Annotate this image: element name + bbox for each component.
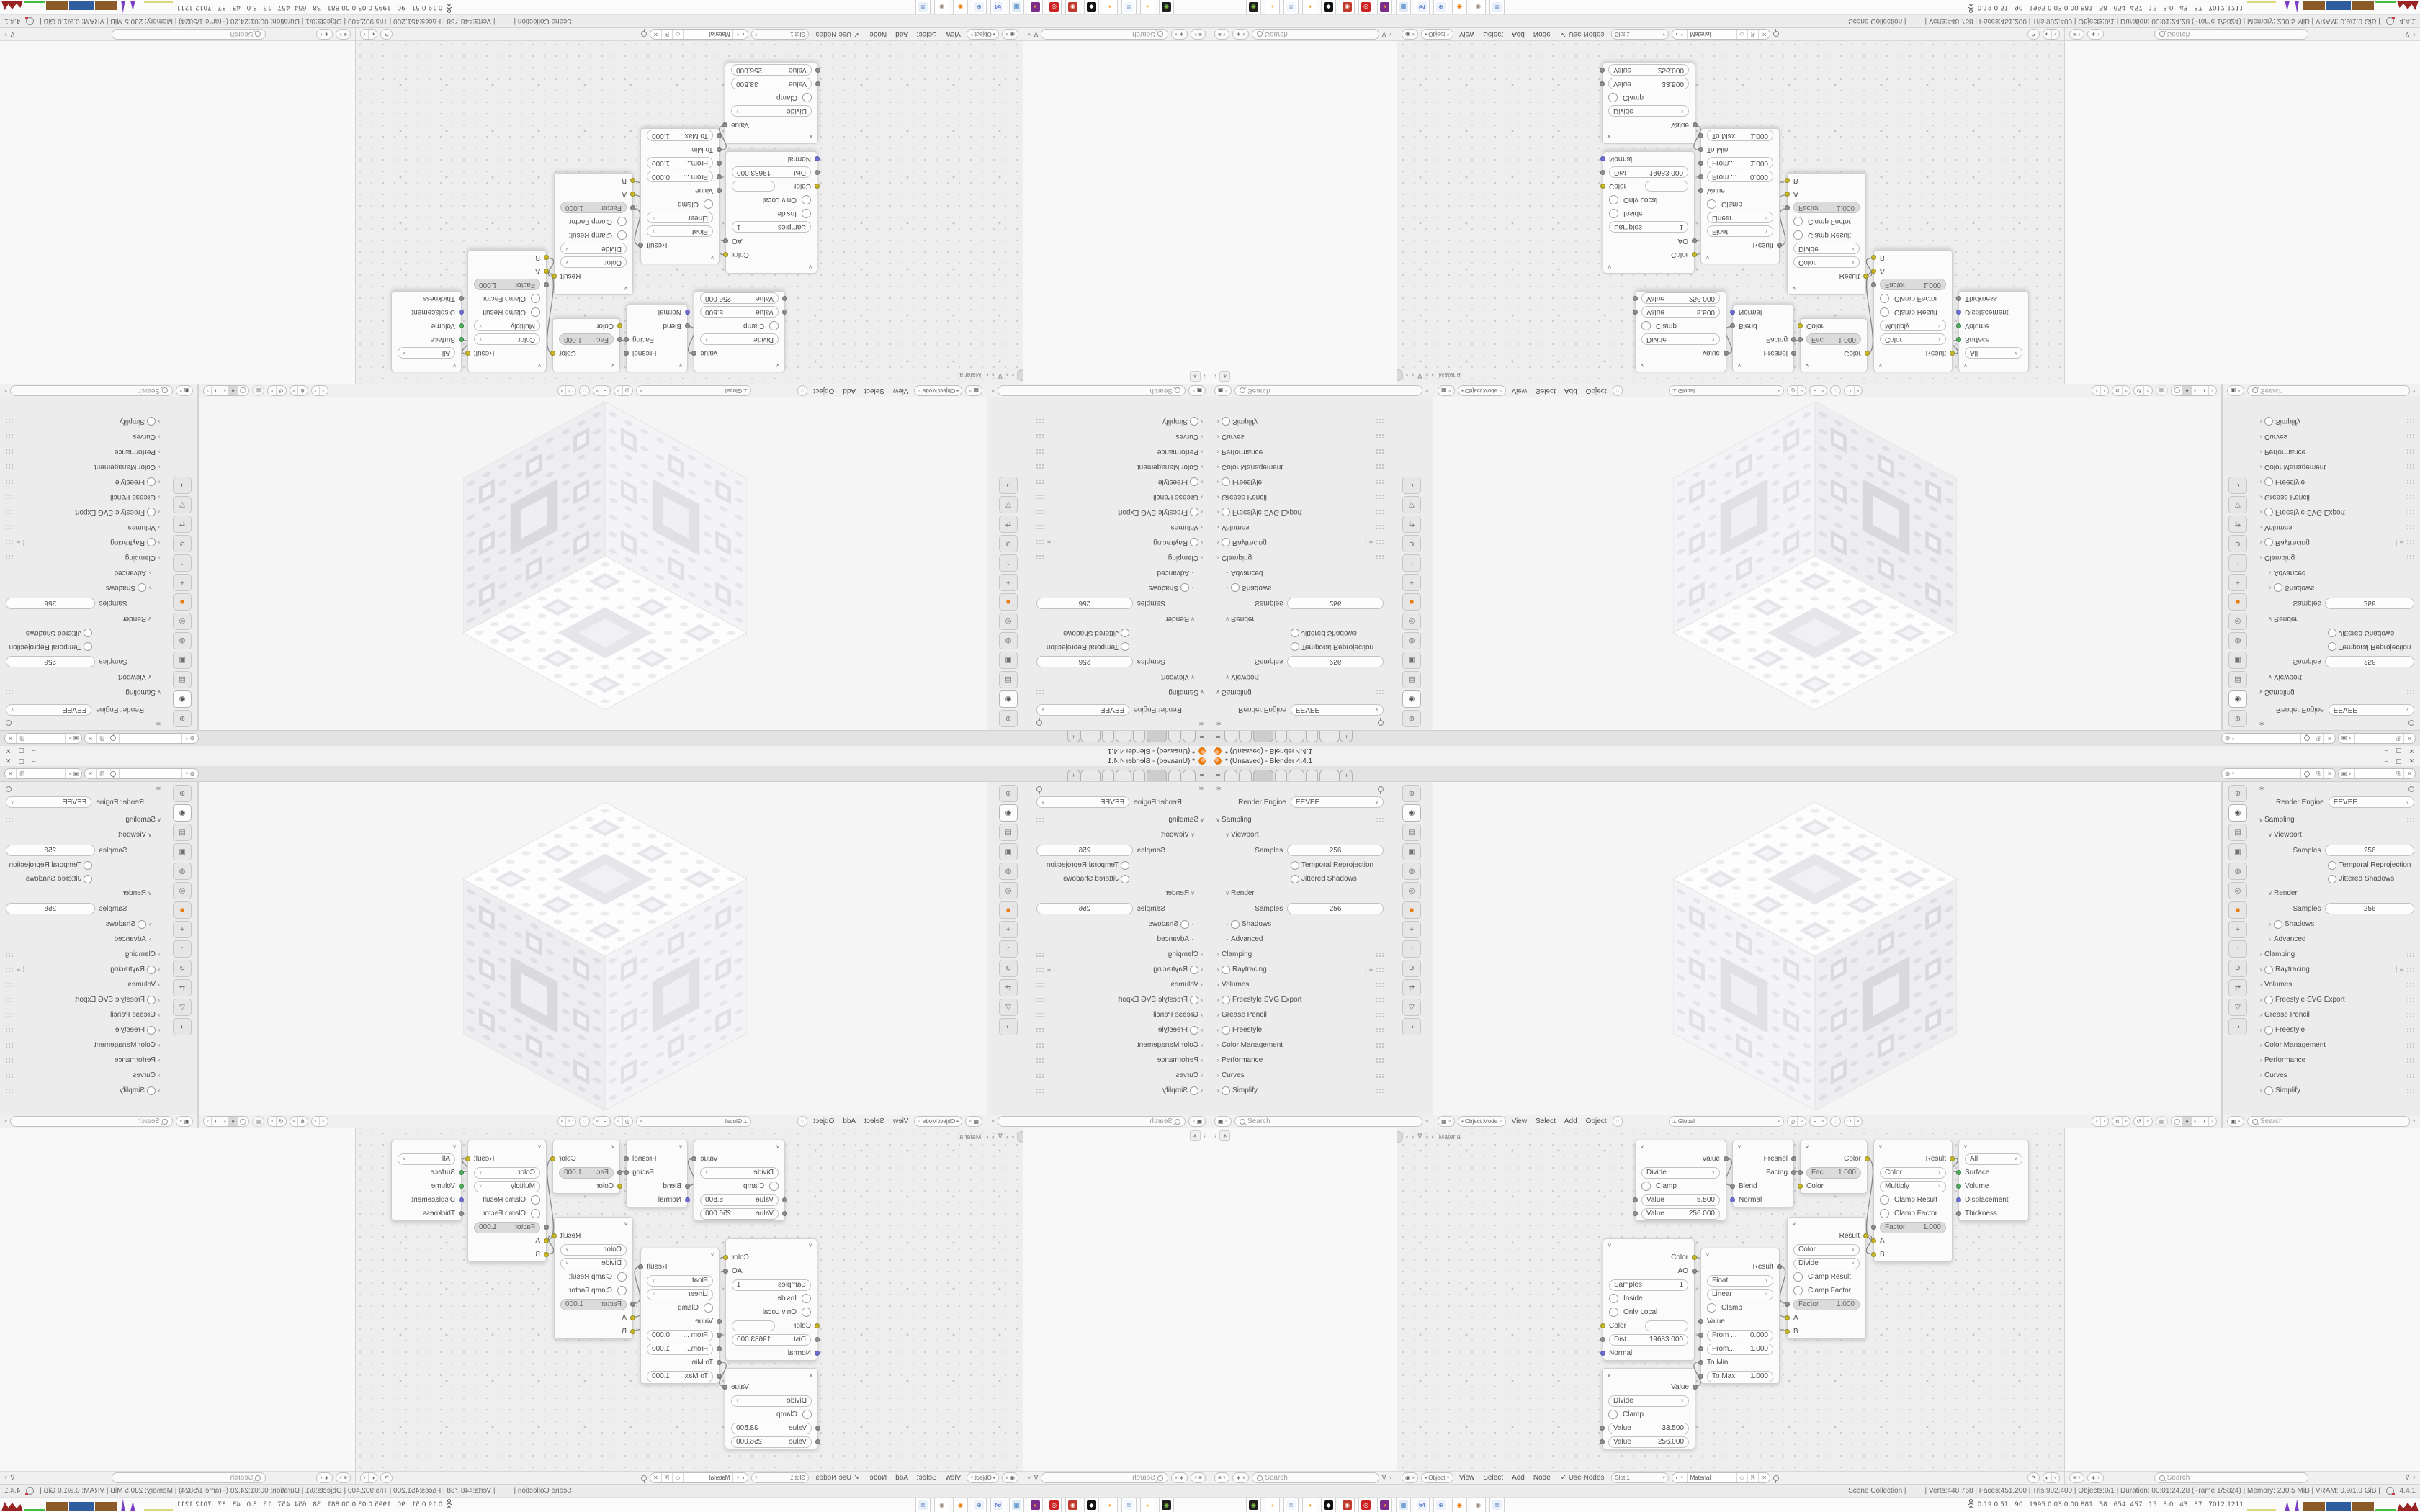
node-header[interactable]: ∨	[627, 360, 687, 372]
pivot-point-dropdown[interactable]: ◎∨	[614, 1116, 632, 1127]
section-shadows[interactable]: ›Shadows	[0, 917, 167, 932]
use-nodes-checkbox[interactable]: ✓ Use Nodes	[1561, 1474, 1605, 1482]
node-row-clamp-factor[interactable]: Clamp Factor	[1874, 292, 1952, 305]
workspace-tab-5[interactable]	[1289, 770, 1304, 781]
modifiers-tab-icon[interactable]: +	[999, 921, 1018, 938]
section-viewport[interactable]: ∨Viewport	[0, 670, 167, 685]
checkbox-jittered-shadows[interactable]: Jittered Shadows	[1210, 626, 1389, 640]
view-layer-tab-icon[interactable]: ▣	[999, 843, 1018, 860]
particles-tab-icon[interactable]: ∴	[999, 554, 1018, 572]
properties-editor-type-button[interactable]: ▣∨	[1214, 1116, 1232, 1127]
node-row-ao[interactable]: AO	[726, 234, 817, 248]
tools-wrench-icon[interactable]: ⊕	[1433, 1498, 1448, 1512]
node-row-fresnel[interactable]: Fresnel	[627, 346, 687, 360]
node-row-factor[interactable]: Factor1.000	[1874, 278, 1952, 292]
filter-funnel-icon[interactable]: ∇	[2406, 1474, 2410, 1482]
node-dropdown[interactable]: Divide∨	[1608, 1395, 1689, 1407]
value-socket-icon[interactable]	[782, 310, 787, 315]
node-row-color[interactable]: Color	[1801, 319, 1867, 333]
render-tab-icon[interactable]: ◉	[173, 804, 192, 822]
section-checkbox[interactable]	[1222, 508, 1230, 517]
viewport-editor-type-button[interactable]: ▦∨	[1438, 385, 1455, 396]
node-dropdown[interactable]: Multiply∨	[1880, 1181, 1946, 1192]
node-header[interactable]: ∨	[1874, 360, 1952, 372]
node-value-field[interactable]: Factor1.000	[474, 1222, 540, 1233]
node-header[interactable]: ∨	[1636, 1140, 1726, 1152]
value-socket-icon[interactable]	[717, 161, 722, 166]
node-value-field[interactable]: Factor1.000	[474, 279, 540, 291]
node-row-only-local[interactable]: Only Local	[1603, 1305, 1694, 1319]
shader-menu-select[interactable]: Select	[1480, 1474, 1506, 1482]
snap-controls[interactable]: ∪∨	[1809, 385, 1827, 396]
render-engine-dropdown[interactable]: EEVEE∨	[1036, 796, 1129, 808]
delete-view-layer-button[interactable]: ✕	[5, 769, 16, 778]
outliner-search-input[interactable]: Search	[1252, 29, 1379, 40]
outliner-filter-mode-dropdown[interactable]: ∗∨	[2087, 1472, 2104, 1483]
node-row-displacement[interactable]: Displacement	[1959, 305, 2028, 319]
node-row-value[interactable]: Value	[1701, 184, 1779, 197]
mode-dropdown[interactable]: ▪ Object Mode∨	[1458, 1116, 1506, 1127]
section-advanced[interactable]: ›Advanced	[0, 565, 167, 580]
pin-scene-icon[interactable]	[107, 769, 119, 778]
node-row-clamp[interactable]: Clamp	[1701, 1301, 1779, 1315]
section-caret-icon[interactable]: ›	[2267, 936, 2274, 942]
value-socket-icon[interactable]	[782, 296, 787, 301]
node-row-surface[interactable]: Surface	[392, 333, 461, 346]
pin-material-icon[interactable]	[1773, 32, 1779, 37]
section-freestyle-svg-export[interactable]: ›Freestyle SVG Export	[2253, 992, 2420, 1007]
node-row-divide[interactable]: Divide∨	[694, 333, 784, 346]
value-socket-icon[interactable]	[1785, 205, 1790, 210]
property-value-field[interactable]: 256	[6, 903, 95, 914]
node-value-field[interactable]: To Max1.000	[647, 1371, 713, 1382]
node-header[interactable]: ∨	[694, 1140, 784, 1152]
transform-orientation-dropdown[interactable]: ⟂ Global∨	[1669, 1116, 1784, 1127]
tool-tab-icon[interactable]: ⊕	[173, 710, 192, 727]
value-socket-icon[interactable]	[624, 1170, 629, 1175]
section-caret-icon[interactable]: ›	[2267, 570, 2274, 576]
workspace-tab-2[interactable]	[1239, 731, 1252, 742]
section-freestyle-svg-export[interactable]: ›Freestyle SVG Export	[1210, 992, 1389, 1007]
node-row-divide[interactable]: Divide∨	[725, 104, 817, 118]
node-header[interactable]: ∨	[725, 132, 817, 143]
node-value-field[interactable]: From...1.000	[647, 1344, 713, 1355]
node-row-clamp[interactable]: Clamp	[694, 319, 784, 333]
snap-node-button[interactable]: ↷	[380, 29, 393, 40]
node-row-thickness[interactable]: Thickness	[392, 1207, 461, 1220]
properties-options-chevron[interactable]: ∨	[4, 388, 7, 393]
section-clamping[interactable]: ›Clamping	[1031, 550, 1210, 565]
workspace-tab-3[interactable]	[1253, 731, 1273, 742]
value-socket-icon[interactable]	[638, 1264, 643, 1269]
viewport-menu-add[interactable]: Add	[840, 1117, 859, 1125]
view-layer-selector[interactable]: ▣∨ ⎘ ✕	[4, 768, 82, 779]
node-mix-node[interactable]: ∨ColorFac1.000Color	[1800, 1140, 1868, 1194]
node-header[interactable]: ∨	[1701, 1248, 1779, 1260]
col-socket-icon[interactable]	[1950, 351, 1955, 356]
section-clamping[interactable]: ›Clamping	[2253, 947, 2420, 962]
overlays-dropdown[interactable]: ↺∨	[2133, 385, 2152, 396]
node-math-divide-1[interactable]: ∨ValueDivide∨ClampValue5.500Value256.000	[1635, 1140, 1726, 1221]
node-dropdown[interactable]: Linear∨	[1707, 212, 1773, 224]
particles-tab-icon[interactable]: ∴	[173, 940, 192, 958]
property-value-field[interactable]: 256	[2325, 598, 2414, 609]
section-checkbox[interactable]	[1190, 418, 1198, 426]
viewport-menu-view[interactable]: View	[890, 1117, 912, 1125]
section-checkbox[interactable]	[1190, 996, 1198, 1004]
node-row-normal[interactable]: Normal	[627, 1193, 687, 1207]
section-caret-icon[interactable]: ∨	[2267, 674, 2274, 680]
checkbox-jittered-shadows[interactable]: Jittered Shadows	[0, 872, 167, 886]
value-socket-icon[interactable]	[1791, 337, 1796, 342]
viewport-editor-type-button[interactable]: ▦∨	[965, 385, 982, 396]
section-volumes[interactable]: ›Volumes	[2253, 520, 2420, 535]
section-caret-icon[interactable]: ›	[146, 585, 153, 591]
delete-scene-button[interactable]: ✕	[85, 734, 96, 743]
node-row-clamp-factor[interactable]: Clamp Factor	[468, 1207, 546, 1220]
section-caret-icon[interactable]: ›	[1214, 524, 1222, 531]
node-row-dist-[interactable]: Dist...19683.000	[1603, 1333, 1694, 1346]
node-checkbox[interactable]	[531, 307, 540, 317]
constraints-tab-icon[interactable]: ⇄	[2228, 516, 2247, 533]
section-viewport[interactable]: ∨Viewport	[2253, 827, 2420, 842]
snap-node-dropdown[interactable]: ◐∨	[2043, 1472, 2060, 1483]
gimp-icon[interactable]: ◉	[1471, 0, 1486, 15]
node-row-value[interactable]: Value	[1636, 1152, 1726, 1166]
vec-socket-icon[interactable]	[815, 156, 820, 161]
section-caret-icon[interactable]: ∨	[1224, 674, 1231, 680]
section-grease-pencil[interactable]: ›Grease Pencil	[1210, 490, 1389, 505]
node-row-float[interactable]: Float∨	[641, 225, 719, 238]
section-advanced[interactable]: ›Advanced	[1031, 932, 1210, 947]
node-value-field[interactable]: Value33.500	[731, 78, 812, 90]
property-value-field[interactable]: 256	[1036, 845, 1133, 856]
col-socket-icon[interactable]	[1785, 1329, 1790, 1334]
snap-node-dropdown[interactable]: ◐∨	[360, 29, 377, 40]
outliner-item[interactable]: › ∗	[1210, 1128, 1397, 1141]
pin-scene-icon[interactable]	[2301, 734, 2313, 743]
node-row-all[interactable]: All∨	[392, 1152, 461, 1166]
documents-icon[interactable]: ≣	[1489, 1498, 1505, 1512]
section-caret-icon[interactable]: ›	[1214, 494, 1222, 500]
value-socket-icon[interactable]	[1698, 1374, 1703, 1379]
value-socket-icon[interactable]	[1600, 1426, 1605, 1431]
purple-app-icon[interactable]: ◕	[1028, 0, 1043, 15]
filter-funnel-icon[interactable]: ∇	[1382, 30, 1386, 38]
expand-caret-icon[interactable]: ›	[1214, 372, 1216, 380]
section-curves[interactable]: ›Curves	[2253, 429, 2420, 444]
node-row-normal[interactable]: Normal	[627, 305, 687, 319]
node-row-clamp[interactable]: Clamp	[1701, 197, 1779, 211]
node-value-field[interactable]: From ...0.000	[1707, 1330, 1773, 1341]
object-data-tab-icon[interactable]: ▽	[2228, 496, 2247, 513]
node-row-color[interactable]: Color	[1603, 1319, 1694, 1333]
checkbox-circle[interactable]	[1121, 875, 1129, 883]
object-tab-icon[interactable]: ■	[1402, 901, 1421, 919]
value-socket-icon[interactable]	[1956, 296, 1961, 301]
col-socket-icon[interactable]	[630, 1329, 635, 1334]
output-tab-icon[interactable]: ▤	[2228, 671, 2247, 688]
node-row-fresnel[interactable]: Fresnel	[627, 1152, 687, 1166]
render-tab-icon[interactable]: ◉	[2228, 804, 2247, 822]
section-freestyle[interactable]: ›Freestyle	[1210, 474, 1389, 490]
menger-sponge-cube[interactable]	[463, 402, 747, 710]
node-header[interactable]: ∨	[641, 1248, 719, 1260]
section-caret-icon[interactable]: ›	[1214, 996, 1222, 1003]
section-sampling[interactable]: ∨Sampling	[1210, 812, 1389, 827]
col-socket-icon[interactable]	[723, 252, 728, 257]
purple-app-icon[interactable]: ◕	[1377, 0, 1392, 15]
section-grease-pencil[interactable]: ›Grease Pencil	[0, 490, 167, 505]
node-header[interactable]: ∨	[1603, 132, 1695, 143]
section-caret-icon[interactable]: ∨	[146, 832, 153, 838]
node-checkbox[interactable]	[617, 1272, 627, 1282]
add-workspace-button[interactable]: +	[1067, 770, 1080, 781]
value-socket-icon[interactable]	[459, 1211, 464, 1216]
value-socket-icon[interactable]	[723, 238, 728, 243]
section-viewport[interactable]: ∨Viewport	[2253, 670, 2420, 685]
red-gear-round-icon[interactable]: ◉	[1065, 0, 1080, 15]
minimize-button[interactable]: –	[2385, 747, 2388, 755]
property-value-field[interactable]: 256	[1287, 845, 1384, 856]
value-socket-icon[interactable]	[717, 147, 722, 152]
properties-editor-type-button[interactable]: ▣∨	[2227, 1116, 2244, 1127]
list-icon[interactable]: ⋮≡	[1363, 966, 1373, 973]
section-caret-icon[interactable]: ›	[1214, 1027, 1222, 1033]
value-socket-icon[interactable]	[1633, 296, 1638, 301]
node-checkbox[interactable]	[802, 195, 811, 204]
node-row-float[interactable]: Float∨	[1701, 1274, 1779, 1287]
render-engine-dropdown[interactable]: EEVEE∨	[6, 796, 91, 808]
section-curves[interactable]: ›Curves	[1031, 1068, 1210, 1083]
node-checkbox[interactable]	[802, 1308, 811, 1317]
material-datablock-selector[interactable]: ◐∨ Material ◇ ⎘ ✕	[650, 1472, 748, 1483]
value-socket-icon[interactable]	[1956, 1211, 1961, 1216]
world-tab-icon[interactable]: ◎	[999, 613, 1018, 630]
node-row-color[interactable]: Color	[553, 319, 619, 333]
red-gear-square-icon[interactable]: ◎	[1047, 1498, 1062, 1512]
node-math-divide-2[interactable]: ∨ValueDivide∨ClampValue33.500Value256.00…	[1602, 63, 1695, 144]
section-freestyle-svg-export[interactable]: ›Freestyle SVG Export	[2253, 505, 2420, 520]
view-layer-icon[interactable]: ▣∨	[65, 769, 81, 778]
maximize-button[interactable]: ▢	[19, 747, 25, 755]
minimize-button[interactable]: –	[32, 747, 35, 755]
section-caret-icon[interactable]: ∨	[1189, 616, 1196, 622]
outliner-filter-mode-dropdown[interactable]: ∗∨	[1232, 1472, 1249, 1483]
documents-icon[interactable]: ≣	[915, 0, 931, 15]
vec-socket-icon[interactable]	[1600, 156, 1605, 161]
view-layer-name-field[interactable]	[27, 734, 65, 743]
node-row-value[interactable]: Value256.000	[1603, 1435, 1695, 1449]
value-socket-icon[interactable]	[1698, 1333, 1703, 1338]
value-socket-icon[interactable]	[782, 1197, 787, 1202]
value-socket-icon[interactable]	[1600, 1439, 1605, 1444]
transform-orientation-dropdown[interactable]: ⟂ Global∨	[1669, 385, 1784, 396]
node-row-surface[interactable]: Surface	[392, 1166, 461, 1179]
value-socket-icon[interactable]	[1724, 1156, 1729, 1161]
node-value-field[interactable]: Value256.000	[1608, 1436, 1689, 1448]
node-value-field[interactable]: Value256.000	[731, 1436, 812, 1448]
node-row-value[interactable]: Value33.500	[1603, 77, 1695, 91]
scene-tab-icon[interactable]: ◍	[999, 863, 1018, 880]
workspace-tab-4[interactable]	[1275, 731, 1287, 742]
node-row-linear[interactable]: Linear∨	[1701, 1287, 1779, 1301]
value-socket-icon[interactable]	[1600, 81, 1605, 86]
node-value-field[interactable]: Samples1	[1609, 222, 1688, 233]
section-caret-icon[interactable]: ›	[1214, 479, 1222, 485]
list-icon[interactable]: ⋮≡	[17, 539, 27, 546]
view-layer-icon[interactable]: ▣∨	[2339, 734, 2355, 743]
outliner-filter-chevron[interactable]: ∨	[2413, 32, 2416, 37]
physics-tab-icon[interactable]: ↺	[173, 535, 192, 552]
media-dark-icon[interactable]: ◆	[1321, 0, 1336, 15]
col-socket-icon[interactable]	[544, 255, 549, 260]
object-tab-icon[interactable]: ■	[999, 901, 1018, 919]
view-layer-tab-icon[interactable]: ▣	[2228, 843, 2247, 860]
firefox-2-icon[interactable]: ◕	[1302, 1498, 1317, 1512]
gizmos-dropdown[interactable]: ⋔∨	[2112, 385, 2130, 396]
value-socket-icon[interactable]	[1633, 310, 1638, 315]
viewport-canvas[interactable]	[1433, 782, 2221, 1115]
value-socket-icon[interactable]	[685, 1184, 690, 1189]
physics-tab-icon[interactable]: ↺	[2228, 960, 2247, 977]
modifiers-tab-icon[interactable]: +	[999, 574, 1018, 591]
node-row-all[interactable]: All∨	[1959, 346, 2028, 360]
section-caret-icon[interactable]: ›	[146, 936, 153, 942]
node-value-field[interactable]: Samples1	[1609, 1279, 1688, 1291]
node-row-inside[interactable]: Inside	[1603, 207, 1694, 220]
copy-material-button[interactable]: ⎘	[661, 1473, 672, 1482]
node-row-to-min[interactable]: To Min	[641, 1356, 719, 1369]
close-button[interactable]: ✕	[2408, 757, 2414, 765]
viewport-canvas[interactable]	[1433, 397, 2221, 730]
copy-scene-button[interactable]: ⎘	[96, 734, 107, 743]
value-socket-icon[interactable]	[717, 188, 722, 193]
section-caret-icon[interactable]: ›	[2257, 509, 2264, 516]
render-engine-dropdown[interactable]: EEVEE∨	[1291, 796, 1384, 808]
render-pass-dropdown[interactable]: ◔∨	[311, 1116, 328, 1127]
node-row-normal[interactable]: Normal	[1603, 1346, 1694, 1360]
col-socket-icon[interactable]	[1871, 269, 1876, 274]
node-row-clamp-factor[interactable]: Clamp Factor	[555, 215, 632, 228]
world-tab-icon[interactable]: ◎	[2228, 613, 2247, 630]
value-socket-icon[interactable]	[624, 337, 629, 342]
section-viewport[interactable]: ∨Viewport	[0, 827, 167, 842]
notepad-icon[interactable]: ≣	[1121, 1498, 1137, 1512]
section-shadows[interactable]: ›Shadows	[1031, 580, 1210, 595]
section-checkbox[interactable]	[1222, 966, 1230, 974]
section-caret-icon[interactable]: ›	[2257, 433, 2264, 440]
section-caret-icon[interactable]: ›	[1214, 1057, 1222, 1063]
node-dropdown[interactable]: Divide∨	[560, 1258, 627, 1269]
section-caret-icon[interactable]: ›	[2257, 951, 2264, 958]
value-socket-icon[interactable]	[459, 296, 464, 301]
checkbox-jittered-shadows[interactable]: Jittered Shadows	[0, 626, 167, 640]
node-value-field[interactable]: Factor1.000	[1793, 1299, 1860, 1310]
section-caret-icon[interactable]: ›	[1198, 524, 1206, 531]
view-layer-selector[interactable]: ▣∨ ⎘ ✕	[4, 733, 82, 744]
section-checkbox[interactable]	[1190, 478, 1198, 487]
show-overlays-toggle[interactable]: ▦	[2156, 1116, 2169, 1127]
col-socket-icon[interactable]	[1871, 1238, 1876, 1243]
node-checkbox[interactable]	[802, 1294, 811, 1303]
value-socket-icon[interactable]	[1698, 161, 1703, 166]
node-checkbox[interactable]	[1609, 1308, 1618, 1317]
snap-controls[interactable]: ∪∨	[593, 385, 611, 396]
node-row-value[interactable]: Value	[1603, 1380, 1695, 1394]
node-dropdown[interactable]: Color∨	[560, 1244, 627, 1256]
section-simplify[interactable]: ›Simplify	[0, 1083, 167, 1098]
section-checkbox[interactable]	[1231, 584, 1240, 593]
node-mix-color-divide[interactable]: ∨ResultColor∨Divide∨Clamp ResultClamp Fa…	[1787, 173, 1866, 295]
node-row-ao[interactable]: AO	[726, 1264, 817, 1278]
node-header[interactable]: ∨	[555, 283, 632, 294]
section-freestyle[interactable]: ›Freestyle	[1031, 474, 1210, 490]
node-header[interactable]: ∨	[641, 252, 719, 264]
node-row-from-[interactable]: From...1.000	[1701, 156, 1779, 170]
value-socket-icon[interactable]	[630, 1302, 635, 1307]
section-grease-pencil[interactable]: ›Grease Pencil	[2253, 1007, 2420, 1022]
section-simplify[interactable]: ›Simplify	[2253, 414, 2420, 429]
outliner-display-mode-dropdown[interactable]: ≡∨	[1191, 29, 1206, 40]
value-socket-icon[interactable]	[717, 1374, 722, 1379]
fake-user-shield-button[interactable]: ◇	[672, 30, 683, 39]
property-value-field[interactable]: 256	[1036, 656, 1133, 667]
material-icon[interactable]: ◐∨	[1672, 1473, 1687, 1482]
node-layer-weight[interactable]: ∨FresnelFacingBlendNormal	[626, 1140, 688, 1207]
checkbox-circle[interactable]	[2328, 643, 2336, 652]
node-row-value[interactable]: Value	[1603, 118, 1695, 132]
properties-editor-type-button[interactable]: ▣∨	[1188, 1116, 1206, 1127]
section-caret-icon[interactable]: ›	[2257, 418, 2264, 425]
checkbox-circle[interactable]	[84, 861, 92, 870]
section-caret-icon[interactable]: ›	[156, 509, 163, 516]
node-row-dist-[interactable]: Dist...19683.000	[1603, 166, 1694, 179]
section-sampling[interactable]: ∨Sampling	[0, 812, 167, 827]
outliner-search-input[interactable]: Search	[1041, 1472, 1168, 1483]
outliner-filter-chevron[interactable]: ∨	[1028, 1475, 1031, 1480]
section-shadows[interactable]: ›Shadows	[1031, 917, 1210, 932]
node-dropdown[interactable]: Color∨	[1793, 1244, 1860, 1256]
node-row-color[interactable]: Color∨	[1788, 1243, 1865, 1256]
render-tab-icon[interactable]: ◉	[999, 804, 1018, 822]
node-value-field[interactable]: Factor1.000	[560, 1299, 627, 1310]
section-volumes[interactable]: ›Volumes	[2253, 977, 2420, 992]
node-row-result[interactable]: Result	[1701, 1260, 1779, 1274]
checkbox-temporal-reprojection[interactable]: Temporal Reprojection	[0, 858, 167, 872]
section-performance[interactable]: ›Performance	[0, 1053, 167, 1068]
unlink-material-button[interactable]: ✕	[1759, 30, 1770, 39]
scene-selector[interactable]: ◍∨ ⎘ ✕	[2221, 733, 2336, 744]
node-row-from-[interactable]: From ...0.000	[641, 1328, 719, 1342]
node-header[interactable]: ∨	[553, 1140, 619, 1152]
col-socket-icon[interactable]	[1863, 274, 1868, 279]
node-row-thickness[interactable]: Thickness	[392, 292, 461, 305]
section-freestyle-svg-export[interactable]: ›Freestyle SVG Export	[1031, 505, 1210, 520]
value-socket-icon[interactable]	[691, 351, 696, 356]
node-row-b[interactable]: B	[1874, 1248, 1952, 1261]
outliner-filter-chevron[interactable]: ∨	[1028, 32, 1031, 37]
section-checkbox[interactable]	[147, 539, 156, 547]
add-workspace-button[interactable]: +	[1340, 731, 1353, 742]
col-socket-icon[interactable]	[1692, 252, 1697, 257]
section-caret-icon[interactable]: ›	[1214, 509, 1222, 516]
section-caret-icon[interactable]: ∨	[1224, 616, 1231, 622]
material-datablock-selector[interactable]: ◐∨ Material ◇ ⎘ ✕	[650, 29, 748, 40]
world-tab-icon[interactable]: ◎	[1402, 882, 1421, 899]
viewport-menu-select[interactable]: Select	[1533, 387, 1559, 395]
outliner-tree-empty[interactable]	[0, 1128, 355, 1471]
